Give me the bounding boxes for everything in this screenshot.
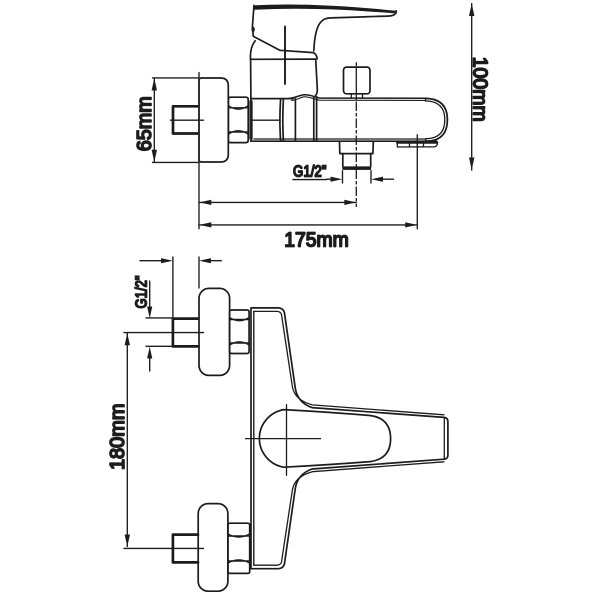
- svg-text:G1/2": G1/2": [293, 164, 327, 181]
- svg-text:65mm: 65mm: [134, 96, 156, 151]
- svg-text:175mm: 175mm: [284, 230, 349, 252]
- svg-text:180mm: 180mm: [107, 404, 129, 471]
- svg-text:100mm: 100mm: [469, 57, 491, 122]
- svg-text:G1/2": G1/2": [134, 276, 151, 309]
